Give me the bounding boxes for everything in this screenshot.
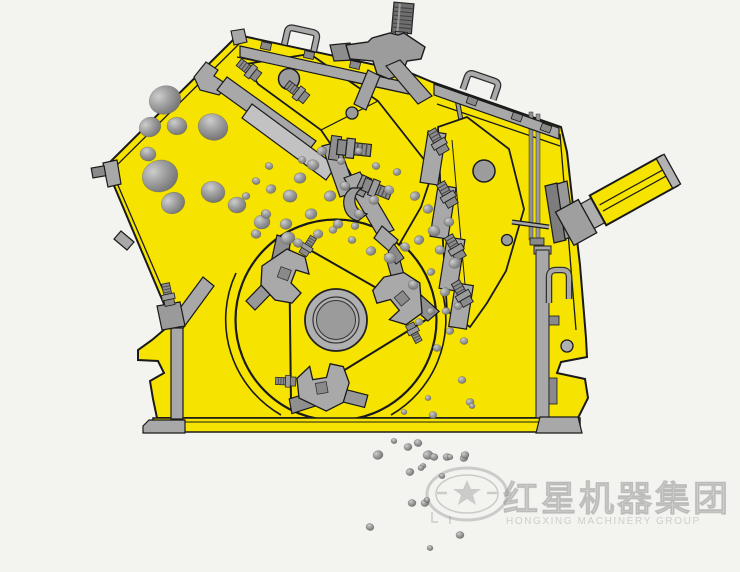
wall-pivot-hole xyxy=(561,340,573,352)
apron2-hole xyxy=(502,235,513,246)
rock xyxy=(404,443,413,451)
rock xyxy=(408,499,416,506)
rock xyxy=(242,192,251,200)
rock xyxy=(461,451,470,459)
foot-left xyxy=(143,420,185,433)
left-support-post xyxy=(171,328,183,419)
rock xyxy=(329,226,337,234)
foot-right xyxy=(536,417,582,433)
rock xyxy=(458,376,466,383)
rock xyxy=(167,117,188,135)
rock xyxy=(351,222,359,229)
apron2-pivot xyxy=(473,160,495,182)
rock xyxy=(439,473,446,479)
apron1-hole xyxy=(346,107,358,119)
rock xyxy=(430,453,438,461)
illustration-canvas: 红星机器集团 HONGXING MACHINERY GROUP xyxy=(0,0,740,572)
rock xyxy=(337,157,346,165)
rock xyxy=(456,531,464,538)
rock xyxy=(418,465,425,471)
rock xyxy=(460,337,469,345)
tension-hanger-rod-2 xyxy=(536,114,540,240)
rock xyxy=(401,409,408,415)
beam-clamp-block xyxy=(157,302,185,330)
rock xyxy=(433,344,442,352)
watermark-text-en: HONGXING MACHINERY GROUP xyxy=(506,516,701,527)
rock xyxy=(425,395,431,401)
rock xyxy=(415,318,424,326)
tension-hanger-rod xyxy=(529,112,533,240)
impact-crusher-illustration: 红星机器集团 HONGXING MACHINERY GROUP xyxy=(0,0,740,572)
rock xyxy=(469,403,476,409)
rotor-hub xyxy=(305,289,367,351)
rock xyxy=(429,411,437,418)
rock xyxy=(355,147,363,154)
base-plate xyxy=(153,418,580,432)
rock xyxy=(427,545,434,551)
watermark-text-cn: 红星机器集团 xyxy=(503,480,731,520)
lid-corner-cap xyxy=(231,29,247,45)
